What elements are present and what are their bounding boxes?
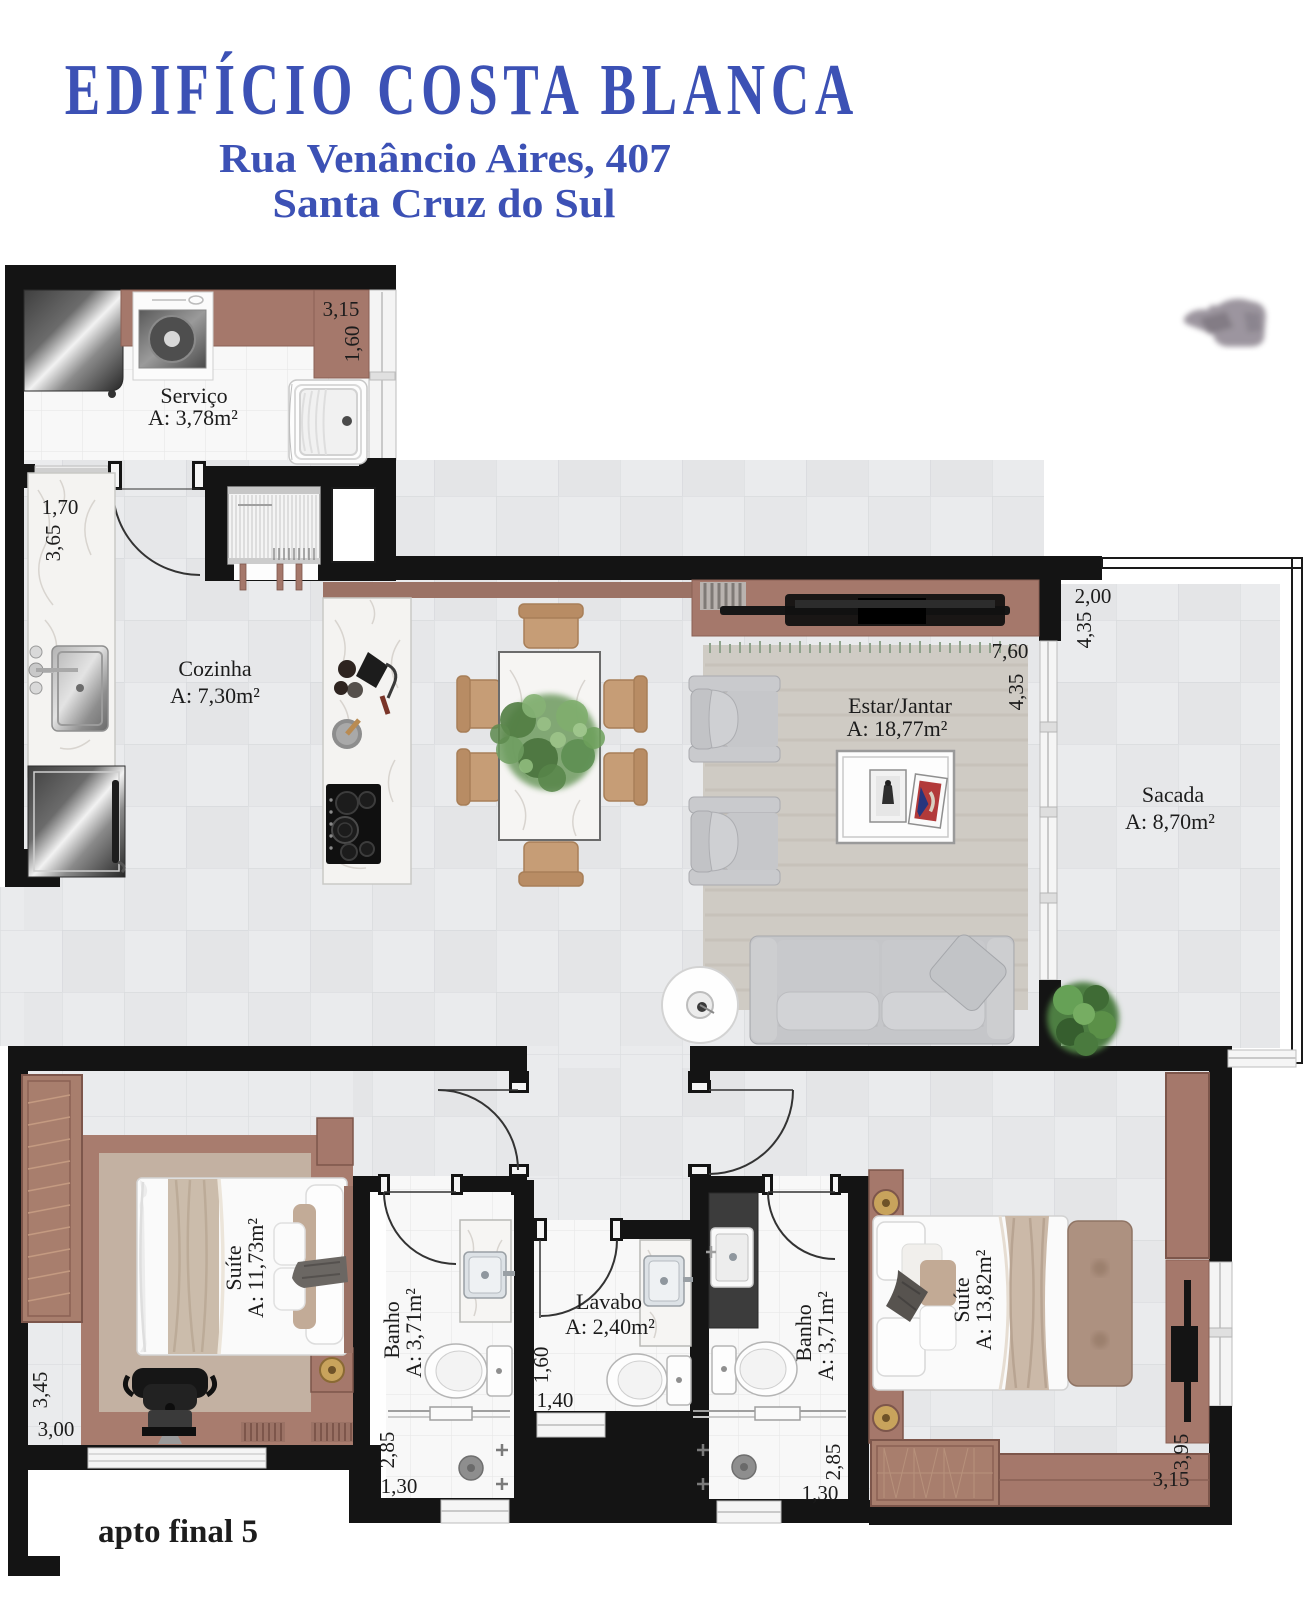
svg-text:A: 3,78m²: A: 3,78m² <box>148 405 238 430</box>
svg-text:4,35: 4,35 <box>1004 674 1028 711</box>
svg-text:Lavabo: Lavabo <box>576 1289 642 1314</box>
svg-text:1,30: 1,30 <box>381 1474 418 1498</box>
svg-text:2,00: 2,00 <box>1075 584 1112 608</box>
svg-text:3,65: 3,65 <box>41 525 65 562</box>
svg-text:3,15: 3,15 <box>1153 1467 1190 1491</box>
svg-text:Estar/Jantar: Estar/Jantar <box>848 693 953 718</box>
svg-text:3,95: 3,95 <box>1169 1434 1193 1471</box>
svg-text:3,15: 3,15 <box>323 297 360 321</box>
svg-text:A: 7,30m²: A: 7,30m² <box>170 683 260 708</box>
svg-text:1,70: 1,70 <box>42 495 79 519</box>
svg-text:1,60: 1,60 <box>529 1347 553 1384</box>
svg-text:Cozinha: Cozinha <box>178 656 252 681</box>
svg-text:3,45: 3,45 <box>28 1372 52 1409</box>
svg-text:EDIFÍCIO COSTA BLANCA: EDIFÍCIO COSTA BLANCA <box>65 49 857 130</box>
svg-text:A: 3,71m²: A: 3,71m² <box>401 1288 426 1378</box>
svg-text:A: 11,73m²: A: 11,73m² <box>243 1218 268 1318</box>
svg-text:Santa Cruz do Sul: Santa Cruz do Sul <box>273 180 616 226</box>
svg-text:1,30: 1,30 <box>802 1481 839 1505</box>
svg-text:A: 3,71m²: A: 3,71m² <box>813 1291 838 1381</box>
svg-text:4,35: 4,35 <box>1072 612 1096 649</box>
svg-text:A: 2,40m²: A: 2,40m² <box>565 1314 655 1339</box>
svg-text:A: 13,82m²: A: 13,82m² <box>971 1249 996 1350</box>
svg-text:A: 18,77m²: A: 18,77m² <box>847 716 948 741</box>
svg-text:7,60: 7,60 <box>992 639 1029 663</box>
svg-text:A: 8,70m²: A: 8,70m² <box>1125 809 1215 834</box>
svg-text:apto final 5: apto final 5 <box>98 1514 258 1550</box>
svg-text:Sacada: Sacada <box>1142 782 1205 807</box>
svg-text:Rua Venâncio Aires, 407: Rua Venâncio Aires, 407 <box>219 135 671 181</box>
svg-text:3,00: 3,00 <box>38 1417 75 1441</box>
svg-text:2,85: 2,85 <box>375 1432 399 1469</box>
svg-text:2,85: 2,85 <box>821 1444 845 1481</box>
svg-text:1,40: 1,40 <box>537 1388 574 1412</box>
svg-text:1,60: 1,60 <box>340 326 364 363</box>
